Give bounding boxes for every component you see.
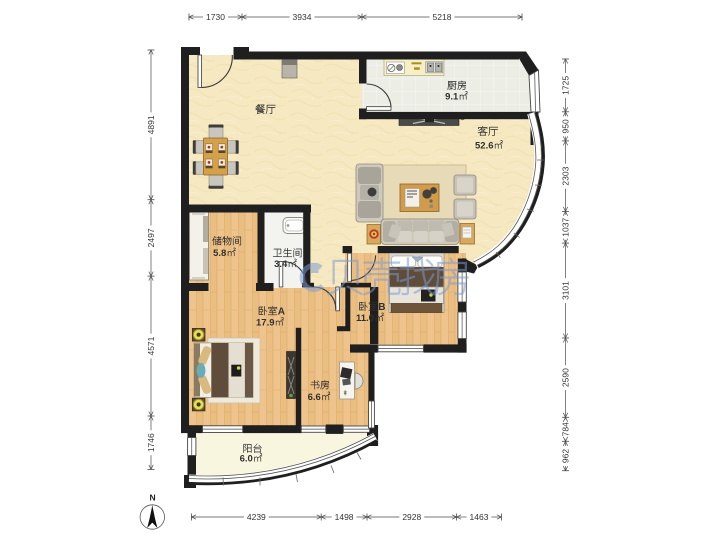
svg-text:3101: 3101 bbox=[561, 281, 571, 300]
svg-text:N: N bbox=[150, 493, 156, 503]
svg-text:4891: 4891 bbox=[146, 115, 156, 134]
svg-text:B: B bbox=[378, 302, 385, 313]
svg-text:A: A bbox=[278, 307, 285, 318]
svg-text:1725: 1725 bbox=[561, 76, 571, 95]
svg-text:2303: 2303 bbox=[561, 166, 571, 185]
svg-text:1498: 1498 bbox=[335, 512, 354, 522]
svg-text:4239: 4239 bbox=[247, 512, 266, 522]
svg-text:5.8: 5.8 bbox=[213, 248, 226, 259]
svg-text:6.6: 6.6 bbox=[308, 392, 321, 403]
svg-text:5218: 5218 bbox=[433, 12, 452, 22]
svg-text:1037: 1037 bbox=[561, 218, 571, 237]
svg-text:17.9: 17.9 bbox=[256, 318, 275, 329]
svg-text:3934: 3934 bbox=[293, 12, 312, 22]
svg-text:784: 784 bbox=[561, 422, 571, 436]
svg-text:1730: 1730 bbox=[206, 12, 225, 22]
svg-text:2590: 2590 bbox=[561, 368, 571, 387]
svg-text:3.4: 3.4 bbox=[274, 259, 288, 270]
svg-text:6.0: 6.0 bbox=[240, 454, 253, 465]
svg-text:52.6: 52.6 bbox=[475, 141, 494, 152]
svg-text:2497: 2497 bbox=[146, 228, 156, 247]
svg-text:9.1: 9.1 bbox=[445, 92, 459, 103]
svg-text:950: 950 bbox=[561, 119, 571, 133]
svg-text:962: 962 bbox=[561, 449, 571, 463]
svg-text:2928: 2928 bbox=[402, 512, 421, 522]
svg-text:4571: 4571 bbox=[146, 336, 156, 355]
svg-text:11.0: 11.0 bbox=[356, 313, 374, 324]
svg-text:1463: 1463 bbox=[470, 512, 489, 522]
svg-text:1746: 1746 bbox=[146, 433, 156, 452]
